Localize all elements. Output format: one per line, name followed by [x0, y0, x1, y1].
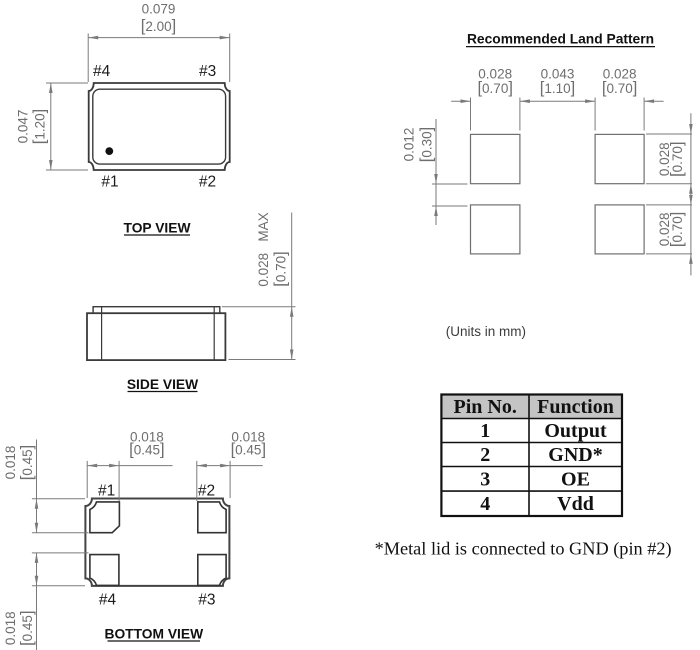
- svg-text:[0.45]: [0.45]: [18, 610, 36, 645]
- svg-text:[1.20]: [1.20]: [31, 109, 49, 144]
- svg-text:#2: #2: [199, 173, 216, 190]
- svg-text:Function: Function: [537, 396, 614, 418]
- svg-text:#3: #3: [199, 63, 216, 80]
- svg-text:[0.70]: [0.70]: [668, 141, 686, 176]
- svg-text:#4: #4: [93, 63, 111, 80]
- svg-text:SIDE VIEW: SIDE VIEW: [127, 377, 199, 392]
- svg-text:BOTTOM VIEW: BOTTOM VIEW: [104, 627, 204, 642]
- svg-text:0.028: 0.028: [603, 67, 637, 82]
- svg-text:[0.30]: [0.30]: [418, 127, 436, 162]
- svg-text:1: 1: [480, 420, 490, 442]
- svg-text:Recommended Land Pattern: Recommended Land Pattern: [467, 32, 654, 47]
- svg-text:0.079: 0.079: [142, 1, 176, 16]
- svg-text:2: 2: [480, 444, 490, 466]
- svg-text:[0.45]: [0.45]: [129, 441, 164, 459]
- svg-text:0.047: 0.047: [15, 110, 30, 144]
- svg-text:GND*: GND*: [548, 444, 602, 466]
- svg-text:[0.45]: [0.45]: [231, 441, 266, 459]
- svg-text:Pin No.: Pin No.: [454, 396, 517, 418]
- svg-text:3: 3: [480, 468, 490, 490]
- svg-text:#4: #4: [99, 592, 117, 609]
- svg-text:Output: Output: [544, 420, 607, 442]
- svg-text:[2.00]: [2.00]: [141, 17, 176, 35]
- svg-text:#1: #1: [98, 483, 115, 500]
- svg-text:[0.70]: [0.70]: [477, 79, 512, 97]
- svg-text:0.028: 0.028: [478, 67, 512, 82]
- svg-text:[0.45]: [0.45]: [18, 445, 36, 480]
- svg-text:0.018: 0.018: [3, 446, 18, 480]
- svg-text:4: 4: [480, 493, 490, 515]
- svg-text:#2: #2: [198, 483, 215, 500]
- svg-text:(Units in mm): (Units in mm): [446, 324, 526, 339]
- svg-text:#3: #3: [198, 592, 215, 609]
- svg-text:[0.70]: [0.70]: [602, 79, 637, 97]
- svg-text:[0.70]: [0.70]: [272, 251, 290, 286]
- svg-text:Vdd: Vdd: [557, 493, 594, 515]
- svg-text:0.012: 0.012: [402, 128, 417, 162]
- svg-text:MAX: MAX: [256, 212, 271, 241]
- svg-text:0.028: 0.028: [256, 253, 271, 287]
- svg-text:TOP VIEW: TOP VIEW: [124, 221, 192, 236]
- svg-text:[0.70]: [0.70]: [668, 212, 686, 247]
- svg-text:OE: OE: [561, 468, 590, 490]
- svg-text:0.043: 0.043: [541, 67, 575, 82]
- svg-text:#1: #1: [101, 173, 118, 190]
- svg-text:[1.10]: [1.10]: [540, 79, 575, 97]
- svg-text:0.018: 0.018: [3, 611, 18, 645]
- svg-text:*Metal lid is connected to GND: *Metal lid is connected to GND (pin #2): [375, 539, 672, 560]
